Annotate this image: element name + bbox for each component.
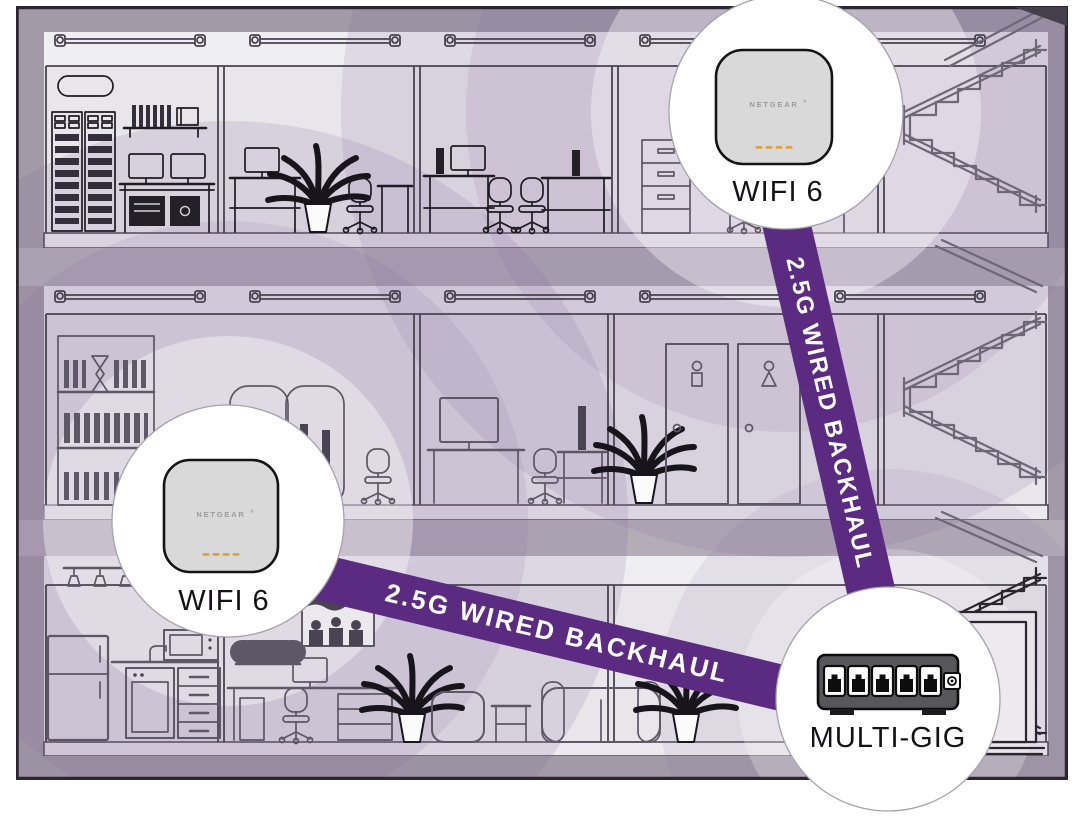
ethernet-port-icon bbox=[896, 666, 917, 696]
ethernet-port-icon bbox=[848, 666, 869, 696]
ethernet-port-icon bbox=[824, 666, 845, 696]
access-point-top-label: WIFI 6 bbox=[732, 176, 823, 208]
monitor-silhouette-icon bbox=[578, 406, 586, 450]
ethernet-port-icon bbox=[872, 666, 893, 696]
netgear-logo-text: NETGEAR bbox=[749, 100, 798, 109]
access-point-left-callout: NETGEAR ® WIFI 6 bbox=[112, 405, 344, 637]
wifi6-access-point-icon: NETGEAR ® bbox=[716, 50, 832, 164]
diagram-canvas: 2.5G WIRED BACKHAUL 2.5G WIRED BACKHAUL … bbox=[0, 0, 1080, 828]
monitor-silhouette-icon bbox=[436, 148, 444, 174]
building-wifi-diagram: 2.5G WIRED BACKHAUL 2.5G WIRED BACKHAUL … bbox=[0, 0, 1080, 828]
access-point-top-callout: NETGEAR ® WIFI 6 bbox=[669, 0, 903, 229]
switch-foot bbox=[830, 709, 854, 715]
switch-callout: MULTI-GIG bbox=[776, 587, 1000, 811]
wifi6-access-point-icon: NETGEAR ® bbox=[164, 460, 278, 572]
monitor-silhouette-icon bbox=[572, 150, 580, 176]
switch-label: MULTI-GIG bbox=[810, 722, 967, 754]
printer-icon bbox=[170, 196, 200, 226]
access-point-left-label: WIFI 6 bbox=[178, 585, 269, 617]
netgear-logo-text: NETGEAR bbox=[196, 510, 245, 519]
switch-foot bbox=[922, 709, 946, 715]
power-jack-icon bbox=[944, 673, 960, 689]
ethernet-port-icon bbox=[920, 666, 941, 696]
multi-gig-switch-icon bbox=[818, 655, 960, 715]
